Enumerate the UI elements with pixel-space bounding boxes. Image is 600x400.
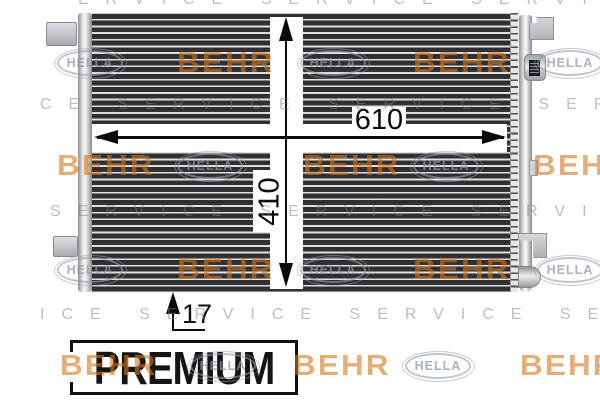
line-letter: E [55, 346, 84, 390]
arrow-up-icon [279, 17, 293, 41]
premium-label: PREMIUM [94, 345, 275, 391]
premium-line-banner: PREMIUM L I N E [70, 340, 524, 395]
arrow-down-icon [279, 263, 293, 287]
product-image-condenser: 410 610 17 PREMIUM L I N E ERVICE SERVIC… [0, 0, 600, 400]
premium-badge: PREMIUM [70, 340, 298, 395]
width-dimension-label: 610 [352, 107, 406, 133]
height-dimension-label: 410 [255, 172, 286, 232]
height-arrow-line [285, 22, 288, 284]
arrow-right-icon [482, 130, 506, 144]
depth-dimension-label: 17 [182, 301, 212, 328]
width-arrow-line [97, 136, 504, 139]
arrow-left-icon [94, 130, 118, 144]
